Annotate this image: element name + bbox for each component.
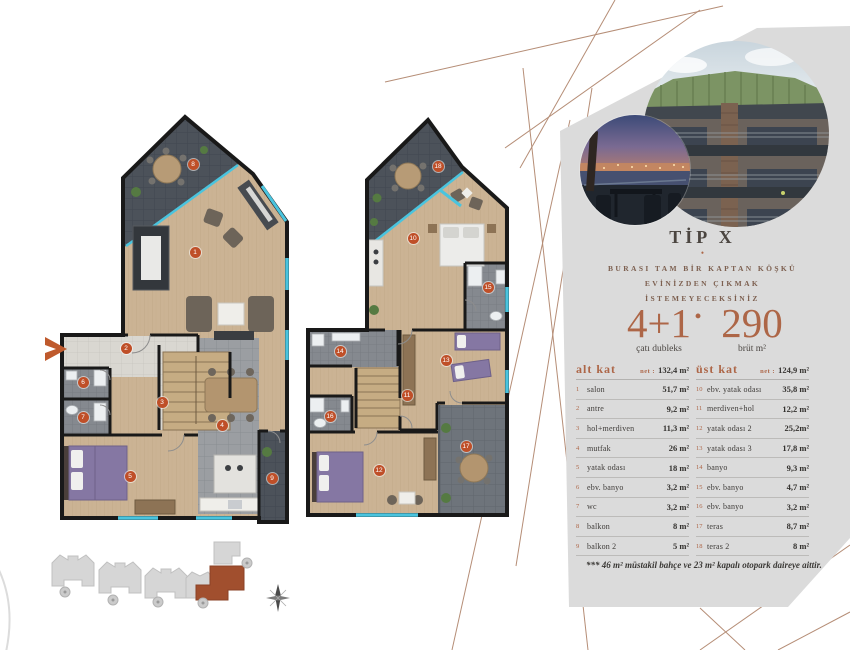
- room-number-marker: 9: [267, 473, 278, 484]
- room-number-marker: 10: [408, 233, 419, 244]
- room-number-marker: 11: [402, 390, 413, 401]
- gross-area-label: brüt m²: [702, 344, 802, 354]
- area-table-lower: alt kat net : 132,4 m² 1salon51,7 m²2ant…: [576, 362, 689, 556]
- room-number-marker: 3: [157, 397, 168, 408]
- room-number-marker: 14: [335, 346, 346, 357]
- plant: [131, 187, 141, 197]
- room-number-marker: 1: [190, 247, 201, 258]
- net-label: net :: [640, 368, 655, 375]
- rooms-count-label: çatı dubleks: [600, 344, 718, 354]
- room-number-marker: 18: [433, 161, 444, 172]
- area-row: 16ebv. banyo3,2 m²: [696, 498, 809, 518]
- area-row: 12yatak odası 225,2m²: [696, 419, 809, 439]
- area-row: 11merdiven+hol12,2 m²: [696, 400, 809, 420]
- terrace-photo-art: [580, 115, 690, 225]
- sofa: [248, 296, 274, 332]
- bed-double: [62, 446, 127, 500]
- area-row: 1salon51,7 m²: [576, 380, 689, 400]
- room-number-marker: 2: [121, 343, 132, 354]
- area-row: 3hol+merdiven11,3 m²: [576, 419, 689, 439]
- room-number-marker: 17: [461, 441, 472, 452]
- room-number-marker: 4: [217, 420, 228, 431]
- net-label: net :: [760, 368, 775, 375]
- tagline-line: EVİNİZDEN ÇIKMAK: [560, 279, 845, 288]
- room-number-marker: 5: [125, 471, 136, 482]
- area-table-upper: üst kat net : 124,9 m² 10ebv. yatak odas…: [696, 362, 809, 556]
- area-row: 9balkon 25 m²: [576, 537, 689, 557]
- decorative-arc: [0, 568, 10, 650]
- area-row: 6ebv. banyo3,2 m²: [576, 478, 689, 498]
- stairs: [356, 368, 400, 428]
- gross-area: 290: [702, 303, 802, 343]
- kitchen-island: [214, 455, 256, 493]
- site-plan: [52, 542, 290, 612]
- room-number-marker: 16: [325, 411, 336, 422]
- area-row: 5yatak odası18 m²: [576, 458, 689, 478]
- compass-icon: [266, 584, 290, 612]
- room-number-marker: 6: [78, 377, 89, 388]
- floorplan-lower: [45, 117, 287, 522]
- tagline-line: BURASI TAM BİR KAPTAN KÖŞKÜ: [560, 264, 845, 273]
- table-header: alt kat net : 132,4 m²: [576, 362, 689, 380]
- area-row: 10ebv. yatak odası35,8 m²: [696, 380, 809, 400]
- area-row: 13yatak odası 317,8 m²: [696, 439, 809, 459]
- tagline-line: İSTEMEYECEKSİNİZ: [560, 294, 845, 303]
- net-value: 124,9 m²: [778, 365, 809, 375]
- table-header: üst kat net : 124,9 m²: [696, 362, 809, 380]
- sofa: [186, 296, 212, 332]
- bullet-separator: •: [560, 248, 845, 258]
- net-value: 132,4 m²: [658, 365, 689, 375]
- floorplan-upper: [308, 120, 507, 515]
- brochure-page: 123456789101112131415161718 TİP X • BURA…: [0, 0, 850, 650]
- floor-name: üst kat: [696, 362, 738, 377]
- footnote: *** 46 m² müstakil bahçe ve 23 m² kapalı…: [560, 560, 848, 570]
- bed-double: [312, 452, 363, 502]
- area-row: 17teras8,7 m²: [696, 517, 809, 537]
- floor-name: alt kat: [576, 362, 616, 377]
- area-row: 2antre9,2 m²: [576, 400, 689, 420]
- room-number-marker: 13: [441, 355, 452, 366]
- room-number-marker: 15: [483, 282, 494, 293]
- area-row: 8balkon8 m²: [576, 517, 689, 537]
- terrace-view-photo: [580, 115, 690, 225]
- room-number-marker: 8: [188, 159, 199, 170]
- area-row: 18teras 28 m²: [696, 537, 809, 557]
- area-row: 15ebv. banyo4,7 m²: [696, 478, 809, 498]
- area-row: 4mutfak26 m²: [576, 439, 689, 459]
- room-number-marker: 7: [78, 412, 89, 423]
- room-number-marker: 12: [374, 465, 385, 476]
- type-title: TİP X: [560, 227, 845, 248]
- area-row: 14banyo9,3 m²: [696, 458, 809, 478]
- area-row: 7wc3,2 m²: [576, 498, 689, 518]
